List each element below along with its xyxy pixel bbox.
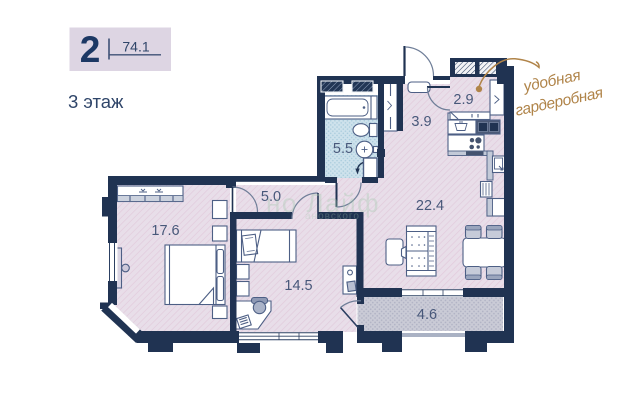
svg-text:22.4: 22.4 bbox=[416, 198, 444, 214]
svg-text:3.9: 3.9 bbox=[411, 114, 431, 130]
svg-text:4.6: 4.6 bbox=[417, 307, 437, 323]
svg-text:ановского: ановского bbox=[305, 211, 360, 222]
svg-text:5.5: 5.5 bbox=[333, 141, 353, 157]
svg-text:14.5: 14.5 bbox=[284, 278, 312, 294]
svg-text:17.6: 17.6 bbox=[151, 223, 179, 239]
svg-text:74.1: 74.1 bbox=[122, 39, 149, 55]
svg-text:2.9: 2.9 bbox=[453, 92, 473, 108]
svg-text:3 этаж: 3 этаж bbox=[68, 91, 124, 112]
svg-text:2: 2 bbox=[80, 29, 101, 70]
